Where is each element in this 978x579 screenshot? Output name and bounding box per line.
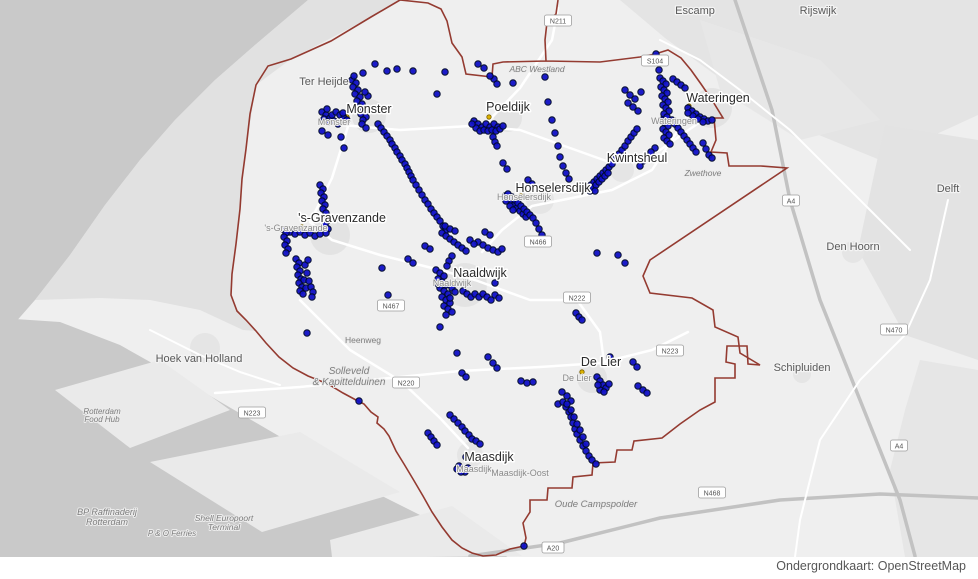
district-label: Rijswijk: [800, 5, 837, 17]
data-point-dot[interactable]: [632, 96, 638, 102]
road-shield-label: N468: [704, 491, 721, 498]
data-point-dot[interactable]: [574, 421, 580, 427]
data-point-dot[interactable]: [309, 294, 315, 300]
town-label[interactable]: Kwintsheul: [607, 151, 667, 165]
data-point-dot[interactable]: [475, 61, 481, 67]
data-point-dot[interactable]: [340, 110, 346, 116]
data-point-dot[interactable]: [634, 364, 640, 370]
small-place-label: Honselersdijk: [497, 192, 552, 202]
data-point-dot[interactable]: [530, 379, 536, 385]
data-point-dot[interactable]: [593, 461, 599, 467]
road-shield: N220: [393, 377, 420, 388]
data-point-dot[interactable]: [434, 442, 440, 448]
small-place-label: 's-Gravenzande: [264, 223, 327, 233]
data-point-dot[interactable]: [300, 291, 306, 297]
road-shield: N468: [699, 487, 726, 498]
data-point-dot[interactable]: [521, 543, 527, 549]
data-point-dot[interactable]: [700, 140, 706, 146]
data-point-dot[interactable]: [510, 80, 516, 86]
road-shield-label: N467: [383, 304, 400, 311]
road-shield-label: A4: [787, 199, 796, 206]
data-point-dot[interactable]: [379, 265, 385, 271]
minor-area-label: Zwethove: [684, 168, 722, 178]
minor-area-label: P & O Ferries: [148, 529, 196, 538]
minor-area-label: Solleveld: [329, 366, 370, 377]
small-place-label: Maasdijk: [456, 464, 492, 474]
data-point-dot[interactable]: [622, 260, 628, 266]
road-shield-label: A4: [895, 444, 904, 451]
data-point-dot[interactable]: [634, 126, 640, 132]
district-label: Schipluiden: [774, 362, 831, 374]
road-shield: S104: [642, 55, 669, 66]
road-shield: N467: [378, 300, 405, 311]
data-point-dot[interactable]: [564, 401, 570, 407]
road-shield: N466: [525, 236, 552, 247]
road-shield-label: A20: [547, 546, 560, 553]
town-label[interactable]: Wateringen: [686, 91, 750, 105]
data-point-dot[interactable]: [372, 61, 378, 67]
data-point-dot[interactable]: [487, 73, 493, 79]
road-shield: A20: [542, 542, 564, 553]
data-point-dot[interactable]: [442, 69, 448, 75]
data-point-dot[interactable]: [594, 250, 600, 256]
data-point-dot[interactable]: [518, 378, 524, 384]
minor-area-label: BP Raffinaderij: [77, 507, 138, 517]
data-point-dot[interactable]: [568, 407, 574, 413]
data-point-dot[interactable]: [434, 91, 440, 97]
data-point-dot[interactable]: [560, 163, 566, 169]
district-label: Escamp: [675, 5, 715, 17]
data-point-dot[interactable]: [500, 160, 506, 166]
minor-area-label: Rotterdam: [86, 517, 129, 527]
data-point-dot[interactable]: [563, 170, 569, 176]
road-shield-label: N223: [244, 411, 261, 418]
data-point-dot[interactable]: [638, 89, 644, 95]
map-svg: N211S104N466N222N467N220N223N223N470N468…: [0, 0, 978, 557]
minor-area-label: Terminal: [208, 522, 241, 532]
data-point-dot[interactable]: [338, 134, 344, 140]
district-label: Den Hoorn: [826, 241, 879, 253]
data-point-dot[interactable]: [635, 108, 641, 114]
data-point-dot[interactable]: [463, 248, 469, 254]
data-point-dot[interactable]: [579, 317, 585, 323]
data-point-dot[interactable]: [615, 252, 621, 258]
data-point-dot[interactable]: [552, 130, 558, 136]
page: N211S104N466N222N467N220N223N223N470N468…: [0, 0, 978, 579]
small-place-label: De Lier: [562, 373, 591, 383]
data-point-dot[interactable]: [410, 68, 416, 74]
data-point-dot[interactable]: [644, 390, 650, 396]
data-point-dot[interactable]: [306, 278, 312, 284]
data-point-dot[interactable]: [356, 398, 362, 404]
data-point-dot[interactable]: [504, 166, 510, 172]
data-point-dot[interactable]: [469, 121, 475, 127]
small-place-label: Monster: [318, 117, 351, 127]
small-place-label: Naaldwijk: [433, 278, 472, 288]
data-point-dot[interactable]: [524, 380, 530, 386]
data-point-dot[interactable]: [481, 65, 487, 71]
data-point-dot[interactable]: [449, 309, 455, 315]
data-point-dot[interactable]: [494, 365, 500, 371]
minor-area-label: Food Hub: [84, 415, 120, 424]
data-point-dot[interactable]: [385, 292, 391, 298]
data-point-dot[interactable]: [305, 257, 311, 263]
district-label: Delft: [937, 183, 960, 195]
data-point-dot[interactable]: [494, 143, 500, 149]
town-label[interactable]: Monster: [346, 102, 391, 116]
data-point-dot[interactable]: [571, 414, 577, 420]
data-point-dot[interactable]: [549, 117, 555, 123]
town-label[interactable]: De Lier: [581, 355, 621, 369]
data-point-dot[interactable]: [437, 324, 443, 330]
data-point-dot[interactable]: [601, 389, 607, 395]
data-point-dot[interactable]: [499, 246, 505, 252]
data-point-dot[interactable]: [452, 228, 458, 234]
data-point-dot[interactable]: [580, 434, 586, 440]
data-point-dot[interactable]: [304, 270, 310, 276]
town-label[interactable]: Poeldijk: [486, 100, 531, 114]
data-point-dot[interactable]: [577, 427, 583, 433]
data-point-dot[interactable]: [452, 289, 458, 295]
minor-area-label: Oude Campspolder: [555, 499, 638, 510]
data-point-dot[interactable]: [325, 132, 331, 138]
road-shield-label: N222: [569, 296, 586, 303]
town-marker-icon: [487, 115, 491, 119]
data-point-dot[interactable]: [700, 119, 706, 125]
data-point-dot[interactable]: [363, 125, 369, 131]
data-point-dot[interactable]: [667, 141, 673, 147]
data-point-dot[interactable]: [693, 149, 699, 155]
data-point-dot[interactable]: [319, 128, 325, 134]
small-place-label: Maasdijk-Oost: [491, 468, 549, 478]
data-point-dot[interactable]: [555, 143, 561, 149]
data-point-dot[interactable]: [492, 280, 498, 286]
data-point-dot[interactable]: [703, 146, 709, 152]
data-point-dot[interactable]: [463, 374, 469, 380]
data-point-dot[interactable]: [542, 74, 548, 80]
data-point-dot[interactable]: [477, 441, 483, 447]
data-point-dot[interactable]: [494, 81, 500, 87]
data-point-dot[interactable]: [533, 220, 539, 226]
data-point-dot[interactable]: [410, 260, 416, 266]
road-shield: N222: [564, 292, 591, 303]
district-label: Ter Heijde: [299, 76, 349, 88]
data-point-dot[interactable]: [606, 381, 612, 387]
data-point-dot[interactable]: [592, 188, 598, 194]
road-shield-label: N466: [530, 240, 547, 247]
road-shield: N470: [881, 324, 908, 335]
minor-area-label: Heenweg: [345, 335, 381, 345]
data-point-dot[interactable]: [536, 226, 542, 232]
data-point-dot[interactable]: [709, 117, 715, 123]
small-place-label: Wateringen: [651, 116, 697, 126]
data-point-dot[interactable]: [500, 123, 506, 129]
data-point-dot[interactable]: [341, 145, 347, 151]
data-point-dot[interactable]: [510, 207, 516, 213]
data-point-dot[interactable]: [283, 250, 289, 256]
data-point-dot[interactable]: [471, 241, 477, 247]
data-point-dot[interactable]: [443, 312, 449, 318]
data-point-dot[interactable]: [454, 350, 460, 356]
data-point-dot[interactable]: [444, 263, 450, 269]
data-point-dot[interactable]: [557, 154, 563, 160]
map-canvas[interactable]: N211S104N466N222N467N220N223N223N470N468…: [0, 0, 978, 557]
data-point-dot[interactable]: [656, 67, 662, 73]
road-shield: N223: [239, 407, 266, 418]
data-point-dot[interactable]: [427, 246, 433, 252]
minor-area-label: & Kapittelduinen: [313, 377, 386, 388]
data-point-dot[interactable]: [362, 89, 368, 95]
road-shield-label: N211: [550, 19, 566, 26]
data-point-dot[interactable]: [360, 70, 366, 76]
data-point-dot[interactable]: [394, 66, 400, 72]
road-shield-label: S104: [647, 59, 663, 66]
data-point-dot[interactable]: [595, 382, 601, 388]
data-point-dot[interactable]: [709, 155, 715, 161]
town-label[interactable]: Maasdijk: [464, 450, 514, 464]
minor-area-label: ABC Westland: [508, 64, 564, 74]
data-point-dot[interactable]: [447, 295, 453, 301]
road-shield-label: N223: [662, 349, 679, 356]
district-label: Hoek van Holland: [156, 353, 243, 365]
data-point-dot[interactable]: [304, 330, 310, 336]
data-point-dot[interactable]: [622, 87, 628, 93]
data-point-dot[interactable]: [384, 68, 390, 74]
data-point-dot[interactable]: [485, 354, 491, 360]
data-point-dot[interactable]: [605, 170, 611, 176]
data-point-dot[interactable]: [487, 232, 493, 238]
map-attribution: Ondergrondkaart: OpenStreetMap: [776, 558, 966, 574]
road-shield: N223: [657, 345, 684, 356]
road-shield: A4: [891, 440, 908, 451]
data-point-dot[interactable]: [545, 99, 551, 105]
data-point-dot[interactable]: [583, 441, 589, 447]
data-point-dot[interactable]: [351, 73, 357, 79]
road-shield-label: N220: [398, 381, 415, 388]
road-shield: N211: [545, 15, 572, 26]
road-shield: A4: [783, 195, 800, 206]
data-point-dot[interactable]: [496, 295, 502, 301]
road-shield-label: N470: [886, 328, 903, 335]
data-point-dot[interactable]: [324, 106, 330, 112]
